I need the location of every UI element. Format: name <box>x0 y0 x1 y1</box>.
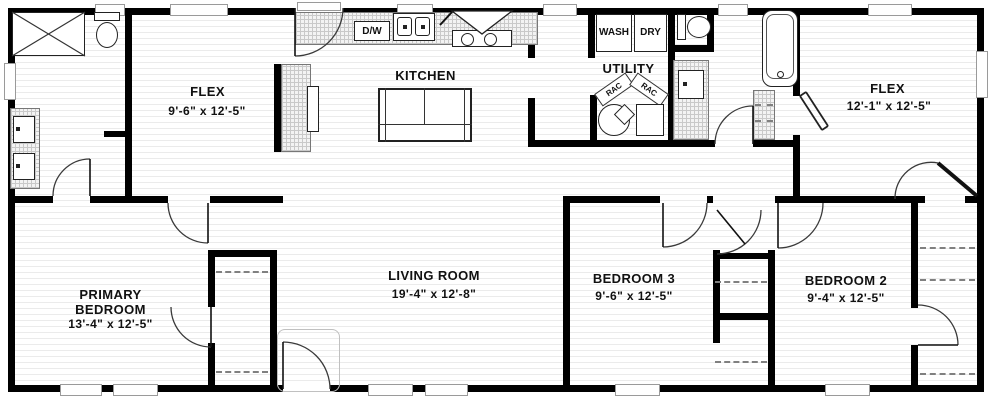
linen-closet <box>753 90 775 140</box>
dryer: DRY <box>634 14 667 52</box>
floor-plan: D/W WASH DRY RAC RAC <box>0 0 992 400</box>
wall-closet-mid <box>713 250 720 343</box>
wall-closet-primary <box>208 343 215 385</box>
sink <box>678 70 704 99</box>
toilet-bowl <box>96 22 118 48</box>
island-line <box>378 124 472 125</box>
wall-middle <box>8 196 53 203</box>
faucet-dot <box>683 82 687 86</box>
room-label-utility: UTILITY <box>576 62 681 77</box>
window <box>718 4 748 16</box>
room-dims-flex-right: 12'-1" x 12'-5" <box>815 100 963 114</box>
closet-rod <box>216 371 268 373</box>
island-line <box>385 88 386 142</box>
wall-living-bed3 <box>563 203 570 385</box>
dishwasher-label: D/W <box>362 26 381 37</box>
shower <box>12 12 85 56</box>
wall-laundry <box>590 95 597 147</box>
toilet-tank <box>677 14 686 40</box>
room-dims-living-room: 19'-4" x 12'-8" <box>375 288 493 302</box>
window <box>425 384 468 396</box>
window <box>4 63 16 100</box>
wall-bath1-right <box>125 8 132 203</box>
room-label-bedroom-3: BEDROOM 3 <box>584 272 684 287</box>
window <box>170 4 228 16</box>
toilet-bowl <box>687 16 711 38</box>
window <box>615 384 660 396</box>
island-line <box>424 88 425 124</box>
linen-shelf <box>755 120 773 122</box>
wall-closet-bed2 <box>911 203 918 308</box>
hvac-unit <box>636 104 664 136</box>
wall-closet-primary <box>208 250 277 257</box>
washer: WASH <box>596 14 632 52</box>
window <box>113 384 158 396</box>
wall-laundry <box>588 8 595 58</box>
window <box>368 384 413 396</box>
dryer-label: DRY <box>640 27 661 38</box>
washer-label: WASH <box>599 27 629 38</box>
wall-middle <box>707 196 713 203</box>
wall-bath2-right <box>793 135 800 203</box>
closet-rod <box>715 281 767 283</box>
window <box>543 4 577 16</box>
linen-shelf <box>755 104 773 106</box>
kitchen-island <box>378 88 472 142</box>
wall-closet-mid <box>713 253 775 259</box>
wall-bath1-stub <box>104 131 132 137</box>
room-label-living-room: LIVING ROOM <box>375 269 493 284</box>
bathtub-inner <box>766 14 794 79</box>
wall-middle <box>775 196 925 203</box>
room-label-bedroom-2: BEDROOM 2 <box>797 274 895 289</box>
room-dims-bedroom-2: 9'-4" x 12'-5" <box>792 292 900 306</box>
dishwasher: D/W <box>354 21 390 41</box>
faucet-dot <box>421 25 425 29</box>
faucet-dot <box>16 127 20 131</box>
room-dims-bedroom-3: 9'-6" x 12'-5" <box>580 290 688 304</box>
wall-closet-mid <box>713 313 775 320</box>
wall-closet-primary <box>270 250 277 385</box>
faucet-dot <box>403 25 407 29</box>
room-label-primary-bedroom: PRIMARY BEDROOM <box>63 288 158 318</box>
wall-middle <box>563 196 660 203</box>
wall-middle <box>210 196 283 203</box>
window <box>825 384 870 396</box>
range-burner <box>484 33 497 46</box>
closet-rod <box>920 373 975 375</box>
room-dims-primary-bedroom: 13'-4" x 12'-5" <box>53 318 168 332</box>
back-door-landing <box>277 329 340 392</box>
island-line <box>464 88 465 142</box>
front-door-threshold <box>297 2 341 11</box>
wall-middle <box>90 196 168 203</box>
window <box>976 51 988 98</box>
wall-middle <box>965 196 984 203</box>
window <box>60 384 102 396</box>
window <box>868 4 912 16</box>
closet-rod <box>715 361 767 363</box>
closet-rod <box>216 271 268 273</box>
closet-rod <box>920 247 975 249</box>
room-label-flex-right: FLEX <box>840 82 935 97</box>
range-burner <box>461 33 474 46</box>
room-label-kitchen: KITCHEN <box>368 69 483 84</box>
wall-closet-primary <box>208 257 215 307</box>
wall-hall <box>528 140 715 147</box>
wall-closet-bed2 <box>911 345 918 385</box>
closet-rod <box>920 279 975 281</box>
media-unit-tv <box>307 86 319 132</box>
tub-drain <box>777 71 784 78</box>
room-dims-flex-left: 9'-6" x 12'-5" <box>132 105 282 119</box>
faucet-dot <box>16 164 20 168</box>
room-label-flex-left: FLEX <box>150 85 265 100</box>
toilet-tank <box>94 12 120 21</box>
